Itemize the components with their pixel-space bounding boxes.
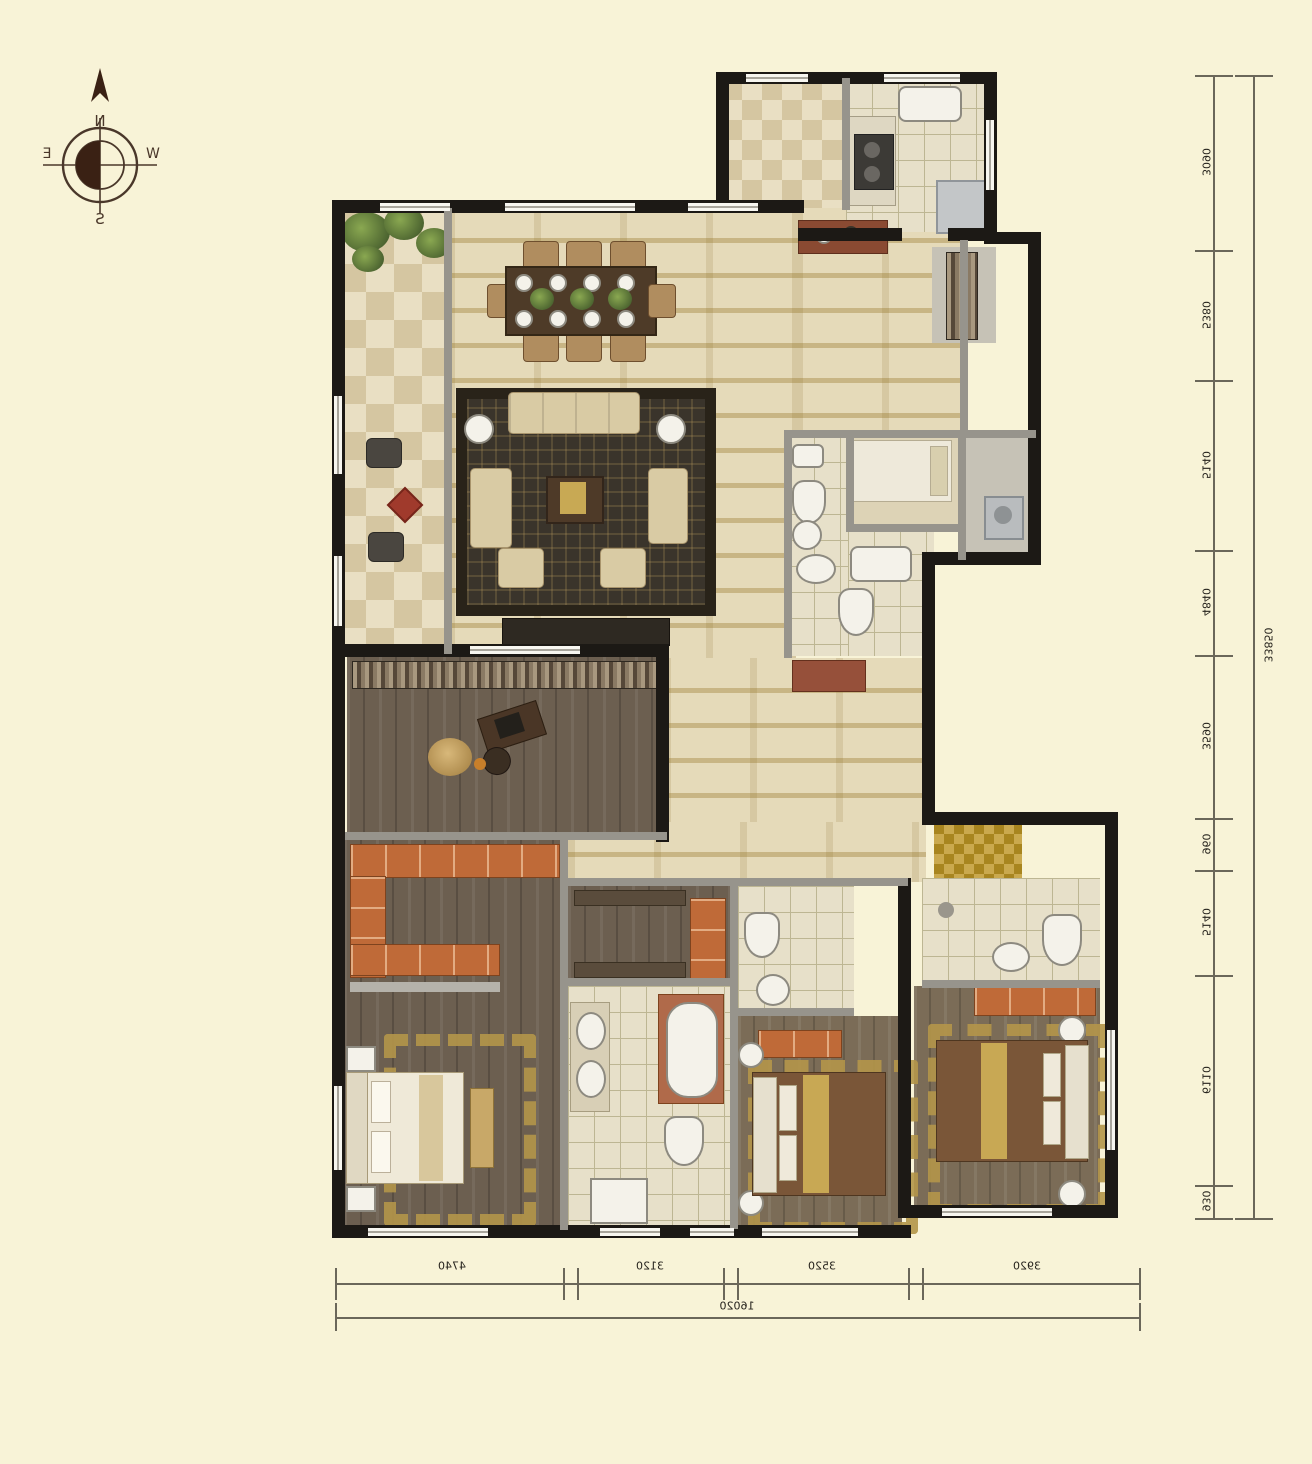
- wall-suite-divider: [848, 524, 964, 532]
- wall-exterior: [1028, 232, 1041, 564]
- dinner-plate: [515, 310, 533, 328]
- bedroom2-toilet: [744, 912, 780, 958]
- master-toilet: [664, 1116, 704, 1166]
- maid-bed-pillow: [930, 446, 948, 496]
- dimension-tick: [1195, 870, 1233, 872]
- dimension-line-right-total: [1253, 75, 1255, 1218]
- dimension-tick: [737, 1268, 739, 1300]
- master-nightstand: [346, 1046, 376, 1072]
- armchair: [498, 548, 544, 588]
- bed-runner: [419, 1075, 443, 1181]
- window: [1107, 1030, 1115, 1150]
- dimension-label: 5140: [1201, 908, 1212, 936]
- sofa-chaise-right: [648, 468, 688, 544]
- service-tub: [850, 546, 912, 582]
- window: [470, 646, 580, 654]
- coffee-table-runner: [560, 482, 586, 514]
- service-wc-toilet: [838, 588, 874, 636]
- dimension-tick: [723, 1268, 725, 1300]
- closet-shelf-strip: [574, 962, 686, 978]
- compass-label-east: E: [43, 146, 52, 162]
- bed-runner: [981, 1043, 1007, 1159]
- dinner-plate: [549, 274, 567, 292]
- window: [368, 1228, 488, 1236]
- sofa-main: [508, 392, 640, 434]
- side-table: [464, 414, 494, 444]
- wall-exterior: [922, 812, 1118, 825]
- compass-label-west: W: [146, 146, 160, 162]
- dimension-tick: [1235, 1218, 1273, 1220]
- master-wardrobe-mid: [350, 944, 500, 976]
- side-table: [656, 414, 686, 444]
- dimension-label: 3590: [1201, 722, 1212, 750]
- bed-pillow: [371, 1081, 391, 1123]
- terrace-chair: [366, 438, 402, 468]
- washing-machine-door-icon: [994, 506, 1012, 524]
- window: [505, 203, 635, 211]
- bedroom2-wardrobe: [758, 1030, 842, 1058]
- service-oval-sink: [796, 554, 836, 584]
- dimension-tick: [335, 1303, 337, 1331]
- terrace-plant: [352, 246, 384, 272]
- bedroom3-wardrobe: [974, 986, 1096, 1016]
- wall-bath-bedroom2: [730, 884, 738, 1229]
- wall-exterior: [1105, 812, 1118, 1217]
- bed-pillow: [779, 1085, 797, 1131]
- wall-corridor-bottom: [568, 878, 908, 886]
- dinner-plate: [549, 310, 567, 328]
- dimension-line-right: [1213, 75, 1215, 1218]
- master-wardrobe-top: [350, 844, 560, 878]
- dimension-label: 5140: [1201, 451, 1212, 479]
- compass-label-north: N: [94, 112, 105, 130]
- bed-pillow: [1043, 1053, 1061, 1097]
- dimension-label: 4740: [438, 1261, 466, 1272]
- service-round-sink: [792, 520, 822, 550]
- wall-exterior: [922, 552, 935, 824]
- dining-chair: [648, 284, 676, 318]
- bed-runner: [803, 1075, 829, 1193]
- bedroom2-bed: [752, 1072, 886, 1196]
- study-ottoman: [428, 738, 472, 776]
- window: [688, 203, 758, 211]
- dimension-label: 3520: [808, 1261, 836, 1272]
- dimension-tick: [335, 1268, 337, 1300]
- table-plant: [570, 288, 594, 310]
- wall-master-right: [560, 840, 568, 1230]
- dimension-label: 3920: [1013, 1261, 1041, 1272]
- window: [334, 396, 342, 474]
- compass-label-south: S: [95, 210, 105, 228]
- bedroom3-closet-floor: [934, 824, 1022, 878]
- compass-rose-icon: N E W S: [35, 58, 165, 228]
- wall-exterior: [934, 552, 1041, 565]
- floor-plan-page: N E W S: [0, 0, 1312, 1464]
- bed-pillow: [1043, 1101, 1061, 1145]
- wall-study-right: [656, 644, 669, 842]
- dimension-tick: [1195, 75, 1233, 77]
- north-balcony-floor: [722, 80, 844, 208]
- shower-tray: [590, 1178, 648, 1224]
- master-sink: [576, 1012, 606, 1050]
- dimension-tick: [922, 1268, 924, 1300]
- master-bench-rail: [350, 982, 500, 992]
- dimension-label: 930: [1201, 1191, 1212, 1212]
- dinner-plate: [515, 274, 533, 292]
- wall-balcony-kitchen: [842, 78, 850, 210]
- bedroom2-sink: [756, 974, 790, 1006]
- compass-north-arrow-icon: [91, 68, 109, 102]
- master-sink: [576, 1060, 606, 1098]
- terrace-floor: [338, 208, 448, 652]
- dimension-total-label: 33850: [1263, 628, 1274, 663]
- dimension-tick: [908, 1268, 910, 1300]
- bedroom3-sink: [992, 942, 1030, 972]
- wall-exterior: [898, 878, 911, 1218]
- master-bed-bench: [470, 1088, 494, 1168]
- bedroom3-headboard: [1065, 1045, 1089, 1159]
- window: [600, 1228, 660, 1236]
- dimension-tick: [1195, 380, 1233, 382]
- dimension-tick: [1195, 1185, 1233, 1187]
- bedroom3-bed: [936, 1040, 1088, 1162]
- dimension-label: 5380: [1201, 301, 1212, 329]
- bedroom2-headboard: [753, 1077, 777, 1193]
- master-bed: [346, 1072, 464, 1184]
- dimension-tick: [1195, 975, 1233, 977]
- table-plant: [608, 288, 632, 310]
- bedroom3-toilet: [1042, 914, 1082, 966]
- dimension-tick: [1195, 818, 1233, 820]
- dimension-tick: [1195, 250, 1233, 252]
- window: [762, 1228, 858, 1236]
- bedroom2-nightstand: [738, 1042, 764, 1068]
- dimension-tick: [577, 1268, 579, 1300]
- shower-head-icon: [938, 902, 954, 918]
- wall-closet-bath: [568, 978, 734, 986]
- master-nightstand: [346, 1186, 376, 1212]
- wall-suite-left: [784, 430, 792, 658]
- wall-study-bottom: [345, 832, 667, 840]
- dimension-tick: [1195, 655, 1233, 657]
- dimension-label: 6110: [1201, 1066, 1212, 1094]
- stove-burner-icon: [864, 166, 880, 182]
- dimension-label: 4840: [1201, 588, 1212, 616]
- window: [942, 1208, 1052, 1216]
- dimension-tick: [1139, 1303, 1141, 1331]
- dimension-tick: [563, 1268, 565, 1300]
- dimension-label: 3090: [1201, 148, 1212, 176]
- wall-kitchen-bottom: [948, 228, 988, 241]
- window: [380, 203, 450, 211]
- window: [746, 74, 808, 82]
- window: [884, 74, 960, 82]
- kitchen-sink: [898, 86, 962, 122]
- bedroom3-nightstand: [1058, 1180, 1086, 1208]
- wall-suite-divider: [958, 430, 966, 560]
- dimension-tick: [1195, 550, 1233, 552]
- dimension-label: 960: [1201, 834, 1212, 855]
- window: [690, 1228, 734, 1236]
- wall-bedroom3-bath-bottom: [922, 980, 1100, 988]
- master-bed-headboard: [347, 1073, 368, 1183]
- window: [334, 1086, 342, 1170]
- terrace-chair: [368, 532, 404, 562]
- wall-suite-divider: [846, 430, 854, 532]
- closet-wardrobe: [690, 898, 726, 980]
- dimension-line-bottom-total: [335, 1317, 1141, 1319]
- master-bathtub: [666, 1002, 718, 1098]
- dimension-tick: [1195, 1218, 1233, 1220]
- dimension-tick: [1235, 75, 1273, 77]
- service-sink: [792, 444, 824, 468]
- window: [986, 120, 994, 190]
- wall-foyer-right: [960, 240, 968, 436]
- wall-terrace-divider: [444, 208, 452, 654]
- study-bookshelf: [352, 661, 657, 689]
- stove-burner-icon: [864, 142, 880, 158]
- wall-exterior: [332, 200, 345, 1238]
- wall-bedroom2-bath-bottom: [738, 1008, 854, 1016]
- sofa-chaise-left: [470, 468, 512, 548]
- wall-suite-top: [784, 430, 1036, 438]
- bed-pillow: [779, 1135, 797, 1181]
- dinner-plate: [583, 310, 601, 328]
- closet-shelf-strip: [574, 890, 686, 906]
- study-decor-ball: [474, 758, 486, 770]
- wall-exterior: [716, 72, 729, 212]
- bed-pillow: [371, 1131, 391, 1173]
- tv-console: [502, 618, 670, 646]
- dimension-total-label: 16020: [720, 1301, 755, 1312]
- dinner-plate: [617, 310, 635, 328]
- armchair: [600, 548, 646, 588]
- service-toilet: [792, 480, 826, 524]
- dimension-tick: [1139, 1268, 1141, 1300]
- table-plant: [530, 288, 554, 310]
- dimension-label: 3120: [636, 1261, 664, 1272]
- wall-kitchen-bottom: [798, 228, 902, 241]
- window: [334, 556, 342, 626]
- shoe-cabinet: [792, 660, 866, 692]
